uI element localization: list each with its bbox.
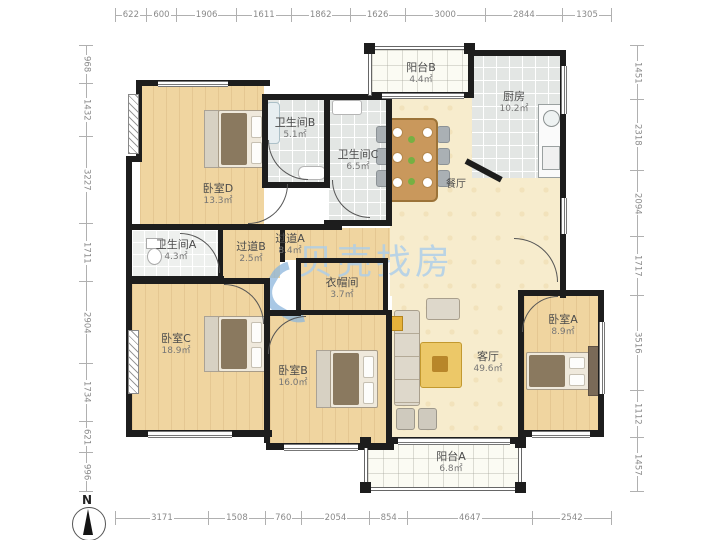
- coffee-table-top: [432, 356, 448, 372]
- window: [398, 438, 510, 445]
- floor-plan-canvas: 贝壳找房: [0, 0, 720, 540]
- wall: [386, 310, 392, 447]
- wall-post: [364, 43, 375, 54]
- ruler-bottom: 3171 1508 760 2054 854 4647 2542: [115, 511, 612, 525]
- wall: [126, 278, 270, 284]
- label-bath-c: 卫生间C6.5㎡: [327, 148, 389, 173]
- plate: [392, 127, 403, 138]
- wall: [296, 258, 388, 263]
- ruler-top: 622 600 1906 1611 1862 1626 3000 2844 13…: [115, 8, 612, 22]
- plate: [392, 177, 403, 188]
- label-balcony-a: 阳台A6.8㎡: [415, 450, 487, 475]
- kitchen-sink: [543, 110, 560, 127]
- bay-window: [128, 94, 139, 154]
- window: [158, 81, 228, 87]
- table-decor: [408, 136, 415, 143]
- bed-bedroom-d: [218, 110, 266, 168]
- wall: [126, 156, 132, 282]
- wall-post: [515, 437, 526, 448]
- window: [561, 198, 567, 234]
- label-balcony-b: 阳台B4.4㎡: [385, 61, 457, 86]
- compass-n-label: N: [82, 493, 92, 507]
- wall: [296, 258, 301, 315]
- kitchen-stove: [542, 146, 560, 170]
- wall: [518, 290, 604, 296]
- table-decor: [408, 178, 415, 185]
- ruler-left: 968 1432 3227 1711 2904 1734 621 996: [79, 45, 93, 492]
- wall-post: [360, 437, 371, 448]
- plant-pot: [396, 408, 415, 430]
- balcony-wall: [364, 487, 522, 491]
- wall: [324, 94, 330, 188]
- window: [561, 66, 567, 114]
- compass-needle-icon: [83, 509, 93, 535]
- label-living: 客厅49.6㎡: [452, 350, 524, 375]
- plate: [392, 152, 403, 163]
- wall: [468, 50, 474, 98]
- window: [599, 322, 605, 394]
- window: [148, 431, 232, 438]
- label-cloakroom: 衣帽间3.7㎡: [308, 276, 376, 301]
- wall-post: [464, 43, 475, 54]
- wardrobe: [204, 110, 219, 168]
- wall: [468, 50, 566, 56]
- plate: [422, 152, 433, 163]
- wall: [264, 282, 270, 443]
- table-decor: [408, 157, 415, 164]
- wall-post: [515, 482, 526, 493]
- label-hall-a: 过道A8.4㎡: [262, 232, 318, 257]
- wall: [264, 310, 301, 316]
- bed-bedroom-b: [330, 350, 378, 408]
- bath-c-washer: [332, 100, 362, 115]
- wall: [560, 176, 566, 298]
- dining-chair: [437, 126, 450, 143]
- bed-bedroom-a: [526, 352, 590, 390]
- wall-post: [360, 482, 371, 493]
- balcony-wall: [368, 46, 474, 50]
- window: [284, 444, 358, 451]
- label-bath-b: 卫生间B5.1㎡: [264, 116, 326, 141]
- label-bedroom-c: 卧室C18.9㎡: [141, 332, 211, 357]
- wall: [324, 220, 392, 226]
- door-arc-bedroom-d: [248, 184, 288, 224]
- plate: [422, 177, 433, 188]
- wall: [296, 310, 388, 315]
- wall: [383, 258, 388, 315]
- ruler-right: 1451 2318 2094 1717 3516 1112 1457: [630, 45, 644, 492]
- label-dining: 餐厅: [436, 179, 476, 192]
- label-bedroom-a: 卧室A8.9㎡: [527, 313, 599, 338]
- plate: [422, 127, 433, 138]
- dining-chair: [437, 148, 450, 165]
- armchair: [426, 298, 460, 320]
- window: [532, 431, 590, 438]
- label-bath-a: 卫生间A4.3㎡: [138, 238, 214, 263]
- bay-window: [128, 330, 139, 394]
- window: [382, 93, 464, 99]
- wall: [126, 224, 342, 230]
- label-bedroom-d: 卧室D13.3㎡: [182, 182, 254, 207]
- plant-pot: [418, 408, 437, 430]
- label-bedroom-b: 卧室B16.0㎡: [258, 364, 328, 389]
- label-kitchen: 厨房10.2㎡: [486, 90, 542, 115]
